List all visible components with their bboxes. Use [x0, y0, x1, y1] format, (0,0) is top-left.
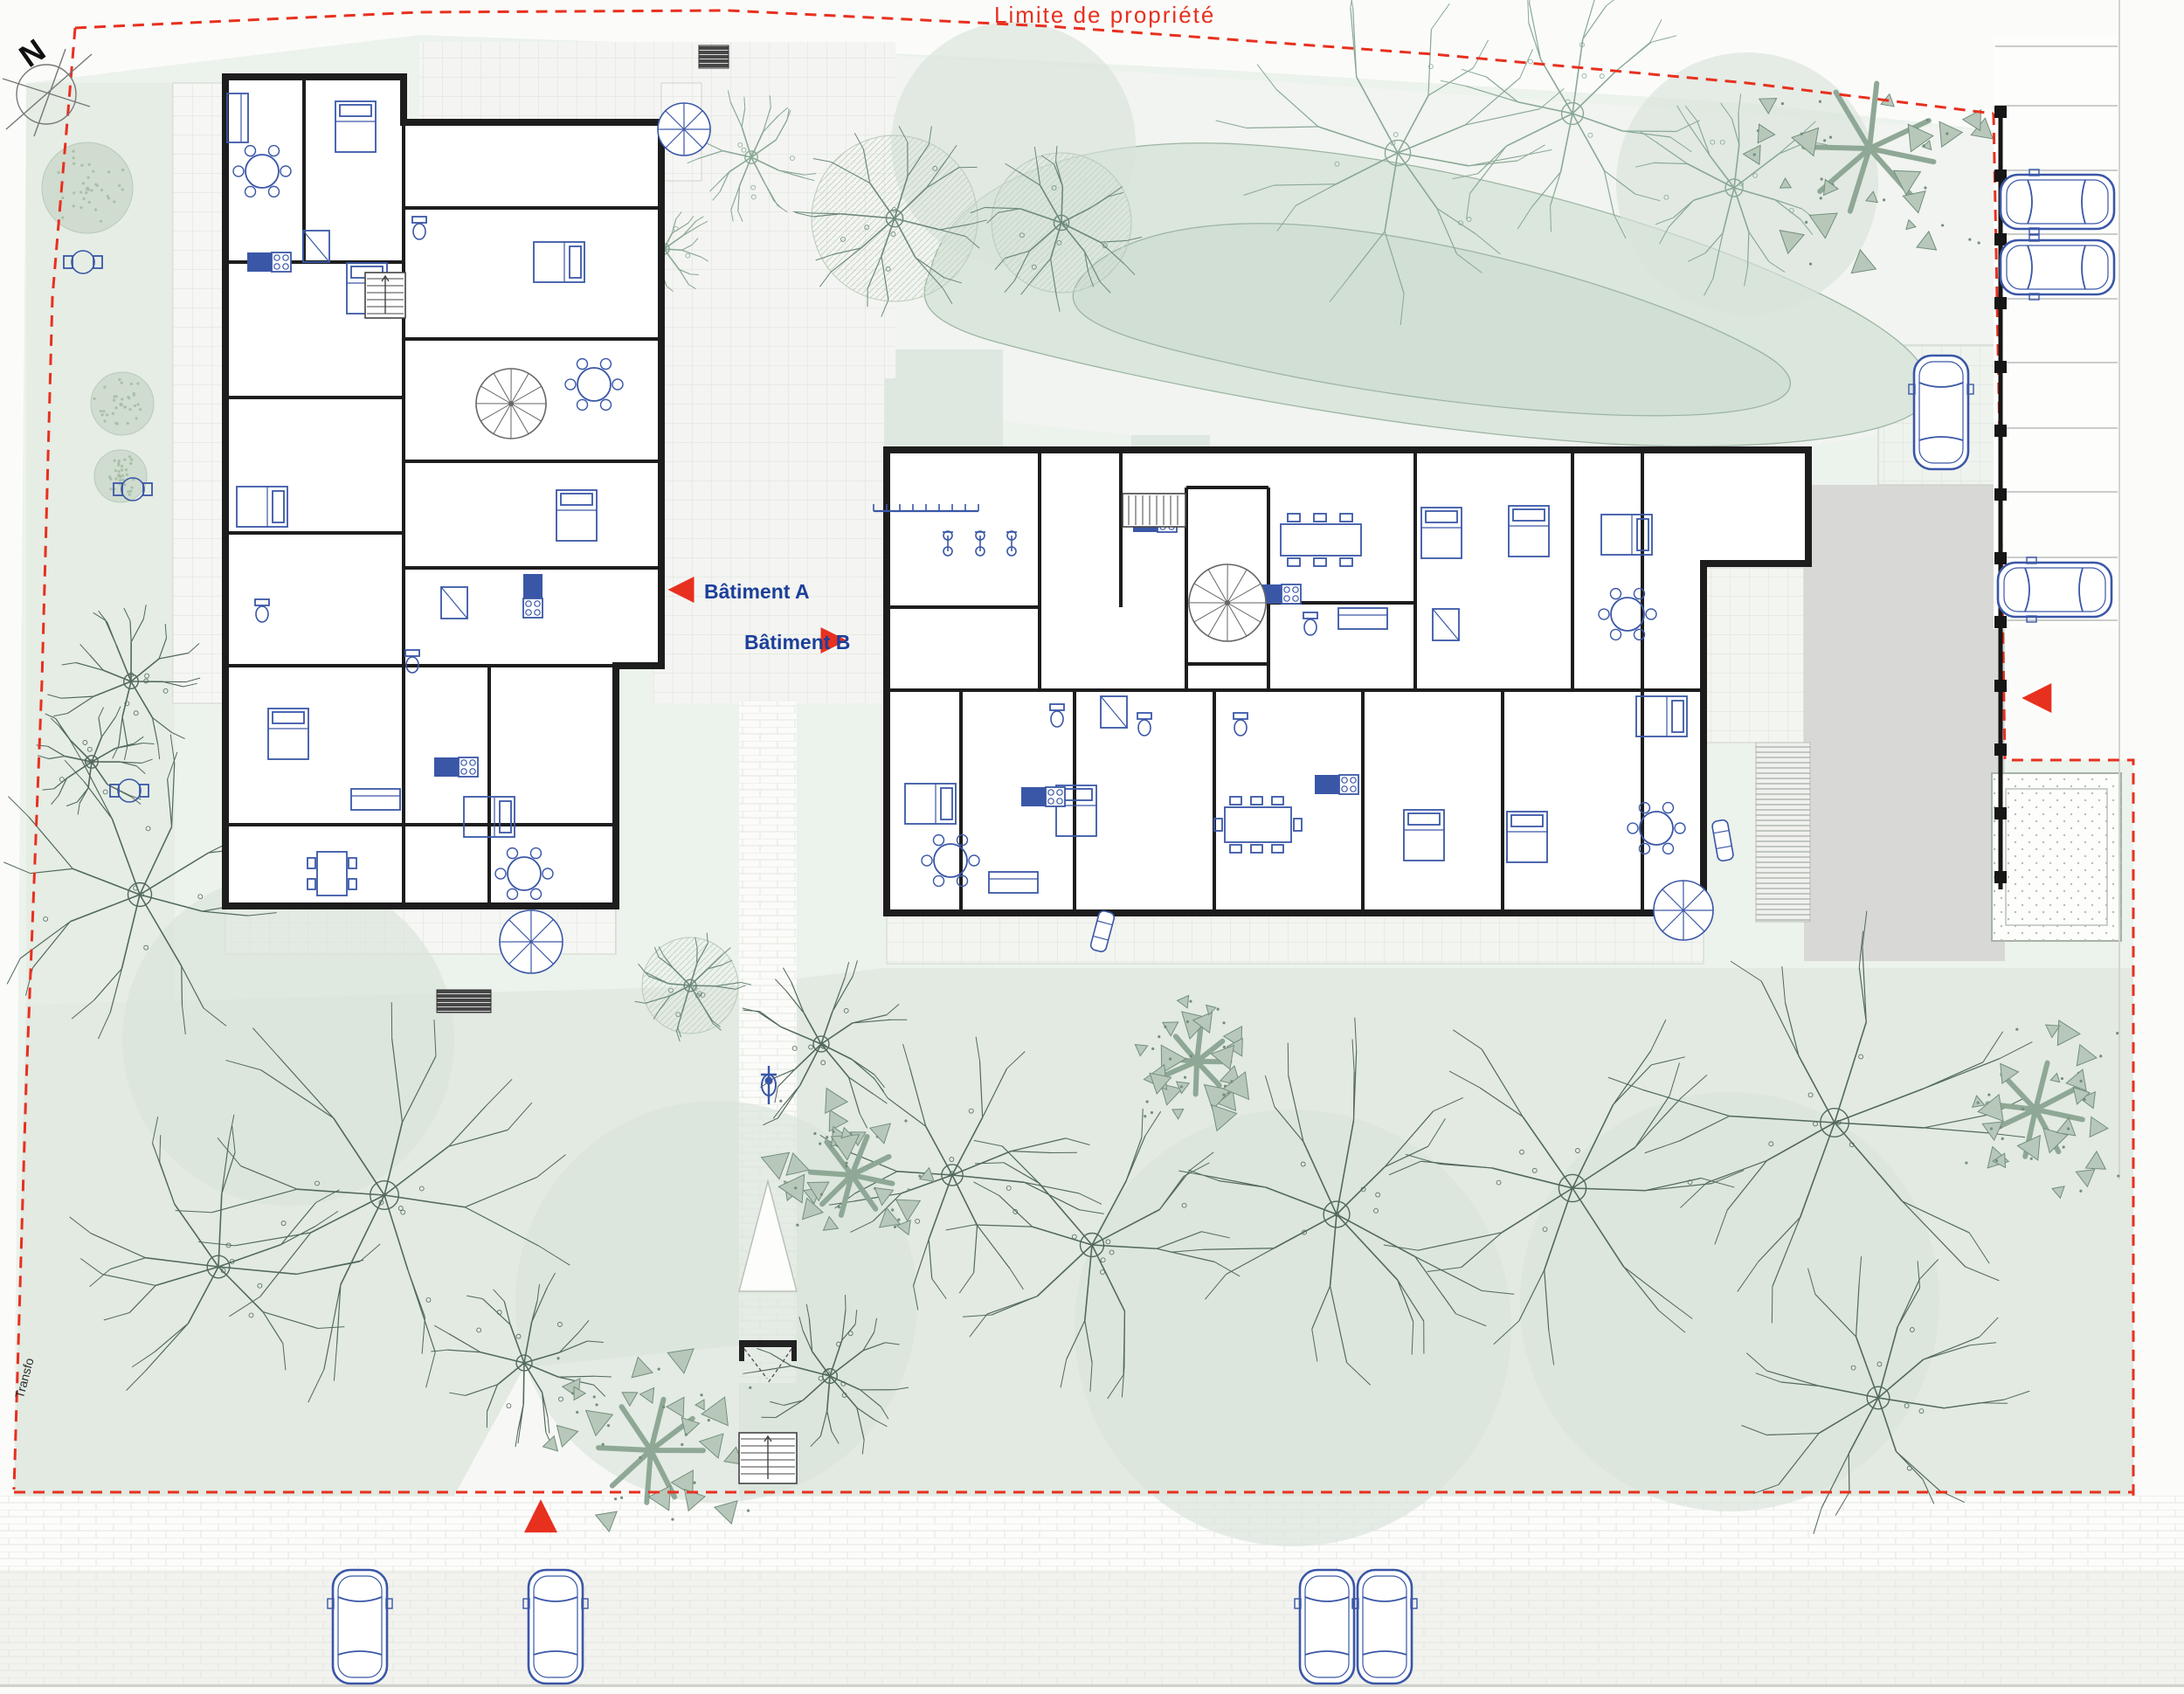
bottom-edge [0, 1684, 2184, 1687]
brick-upper-strip [0, 1496, 2184, 1570]
sandbox [1992, 773, 2121, 941]
stair-spiral [1189, 564, 1266, 641]
site-plan-page: Limite de propriété Bâtiment A Bâtiment … [0, 0, 2184, 1694]
furniture-parasol [500, 910, 563, 973]
tree-blob [42, 142, 133, 233]
parking-strip [1994, 35, 2119, 629]
tree-crown [122, 874, 454, 1206]
car [2001, 169, 2114, 234]
vent-grille [699, 45, 729, 68]
deck-b-right [1756, 743, 1810, 922]
car [1909, 356, 1973, 469]
tree-blob [91, 372, 154, 435]
furniture-parasol [658, 103, 710, 156]
furniture-kitchen [1315, 775, 1358, 794]
furniture-parasol [1654, 881, 1713, 940]
tree-crown [1075, 1110, 1511, 1546]
brick-lower-strip [0, 1570, 2184, 1684]
car [523, 1570, 588, 1684]
furniture-kitchen [523, 574, 543, 618]
tree-blob [94, 450, 147, 502]
car [1998, 557, 2111, 622]
tree-crown [1616, 52, 1878, 315]
car [1352, 1570, 1417, 1684]
terrace-b-bottom [887, 913, 1704, 964]
vent-grille [437, 990, 491, 1013]
car [2001, 235, 2114, 300]
stair-spiral [476, 369, 546, 439]
tree-crown [1520, 1092, 1939, 1511]
stair-straight [365, 273, 405, 318]
gate-lintel [739, 1340, 797, 1347]
furniture-kitchen [434, 757, 478, 777]
stair-straight [739, 1433, 797, 1483]
plaza-mid [653, 378, 884, 703]
stair-straight [1123, 494, 1185, 527]
furniture-kitchen [247, 252, 291, 272]
red-arrow-left [2022, 683, 2051, 713]
site-plan-canvas [0, 0, 2184, 1694]
furniture-kitchen [1021, 787, 1065, 806]
car [1295, 1570, 1359, 1684]
car [328, 1570, 392, 1684]
road [1804, 485, 2005, 961]
terrace-a-left [173, 83, 225, 703]
batiment-b [874, 450, 1808, 953]
terrace-b-right [1706, 568, 1804, 743]
